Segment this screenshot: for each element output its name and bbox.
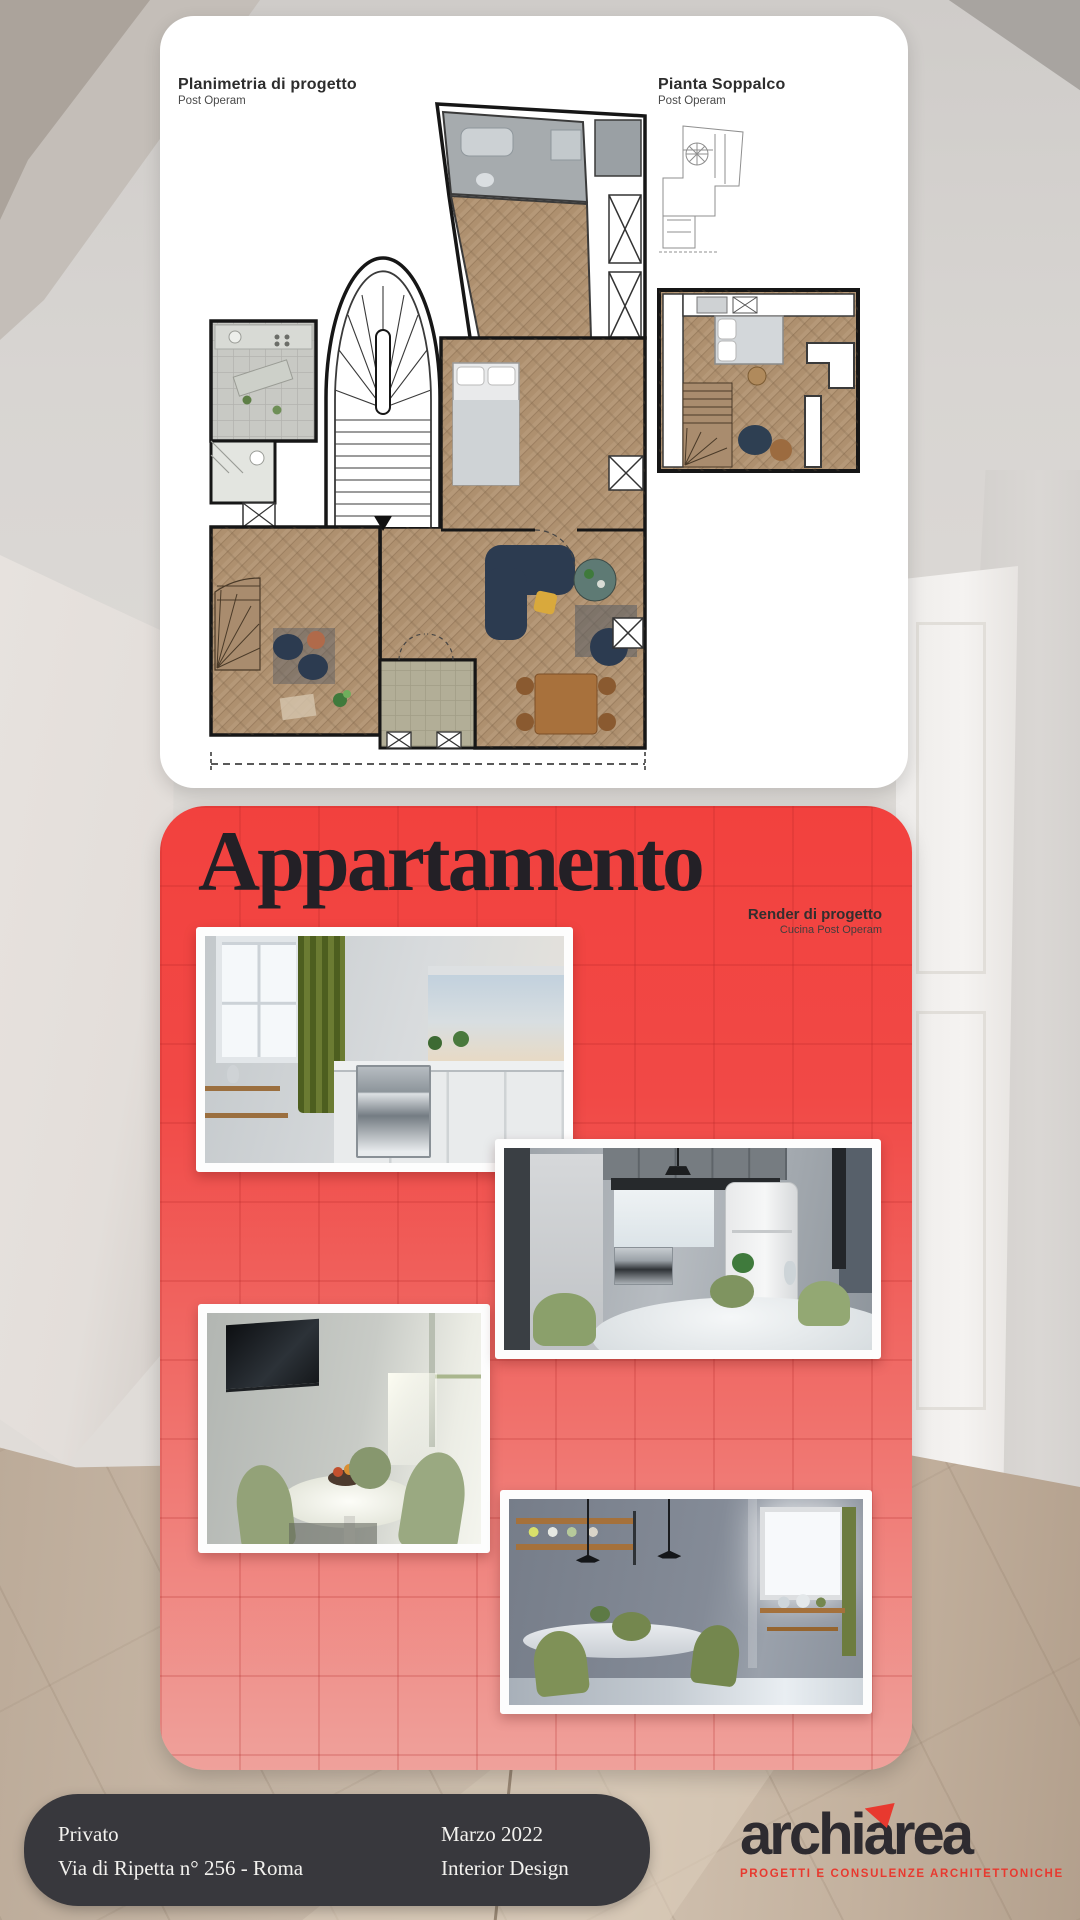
main-plan-title: Planimetria di progetto [178,76,357,94]
wood-shelf [516,1544,636,1550]
wall-shelf [205,1086,280,1091]
wall-tv [226,1319,319,1392]
rug [289,1523,377,1544]
main-floorplan-drawing [185,100,650,780]
green-chair [533,1293,596,1346]
window-shelf [760,1608,845,1613]
sunlight-patch [388,1373,437,1465]
green-chair [710,1275,754,1307]
render-kitchen-photo-2 [495,1139,881,1359]
soppalco-floorplan-drawing [657,288,860,473]
door-panel [916,1011,987,1410]
client-label: Privato [58,1817,303,1851]
jar [227,1065,239,1083]
soppalco-sketch-drawing [655,120,750,255]
green-chair [798,1281,850,1325]
green-curtain [842,1507,856,1655]
plant [428,1036,442,1050]
shelf-decor [771,1594,835,1608]
soppalco-title: Pianta Soppalco [658,76,785,94]
plan-sitting-room [211,527,380,735]
brand-block: archiarea PROGETTI E CONSULENZE ARCHITET… [740,1806,1074,1880]
shelf-frame [633,1511,636,1565]
green-chair [232,1462,297,1551]
pendant-lamp [677,1148,679,1166]
project-card: Appartamento Render di progetto Cucina P… [160,806,912,1770]
shelf-jars [523,1522,629,1543]
fruit [333,1467,343,1477]
door-panel [916,622,987,975]
render-dining-photo-2 [500,1490,872,1714]
floorplan-card: Planimetria di progetto Post Operam Pian… [160,16,908,788]
date-label: Marzo 2022 [441,1817,569,1851]
plant [453,1031,469,1047]
pendant-lamp [587,1499,589,1555]
soppalco-subtitle: Post Operam [658,95,785,107]
plan-kitchen [211,321,316,441]
brand-tagline: PROGETTI E CONSULENZE ARCHITETTONICHE [740,1868,1074,1880]
upper-cabinets [603,1148,787,1180]
plan-upper-wing [437,104,645,344]
address-label: Via di Ripetta n° 256 - Roma [58,1851,303,1885]
soppalco-title-block: Pianta Soppalco Post Operam [658,76,785,107]
archiarea-logo: archiarea [740,1806,1074,1864]
background-left-wall [0,555,175,1465]
wall-corner-highlight [748,1499,757,1668]
window-shelf [767,1627,838,1631]
green-chair [612,1612,651,1641]
wall-shelf [205,1113,288,1118]
date-category-block: Marzo 2022 Interior Design [441,1817,569,1885]
poster-page: Planimetria di progetto Post Operam Pian… [0,0,1080,1920]
category-label: Interior Design [441,1851,569,1885]
oven [614,1247,673,1285]
window [216,936,302,1063]
logo-text-left: archi [740,1802,864,1867]
project-title: Appartamento [198,816,702,906]
flower-vase [590,1606,610,1622]
project-info-pill: Privato Via di Ripetta n° 256 - Roma Mar… [24,1794,650,1906]
render-title: Render di progetto [748,906,882,923]
dark-slab [832,1148,847,1269]
green-chair [349,1447,390,1489]
plan-arched-staircase [326,258,440,531]
background-open-door [896,566,1018,1494]
serving-hatch [428,966,564,1061]
bright-opening [614,1190,713,1247]
plan-small-bathroom [211,441,275,527]
client-address-block: Privato Via di Ripetta n° 256 - Roma [58,1817,303,1885]
render-kitchen-photo-1 [196,927,573,1172]
bright-window [760,1507,845,1600]
wall-edge [504,1148,530,1350]
oven [356,1065,431,1158]
render-dining-photo-1 [198,1304,490,1553]
pendant-lamp [668,1499,670,1551]
decanter [784,1261,796,1285]
plan-dimension-line [211,752,645,772]
render-label-block: Render di progetto Cucina Post Operam [748,906,882,936]
render-subtitle: Cucina Post Operam [748,924,882,936]
